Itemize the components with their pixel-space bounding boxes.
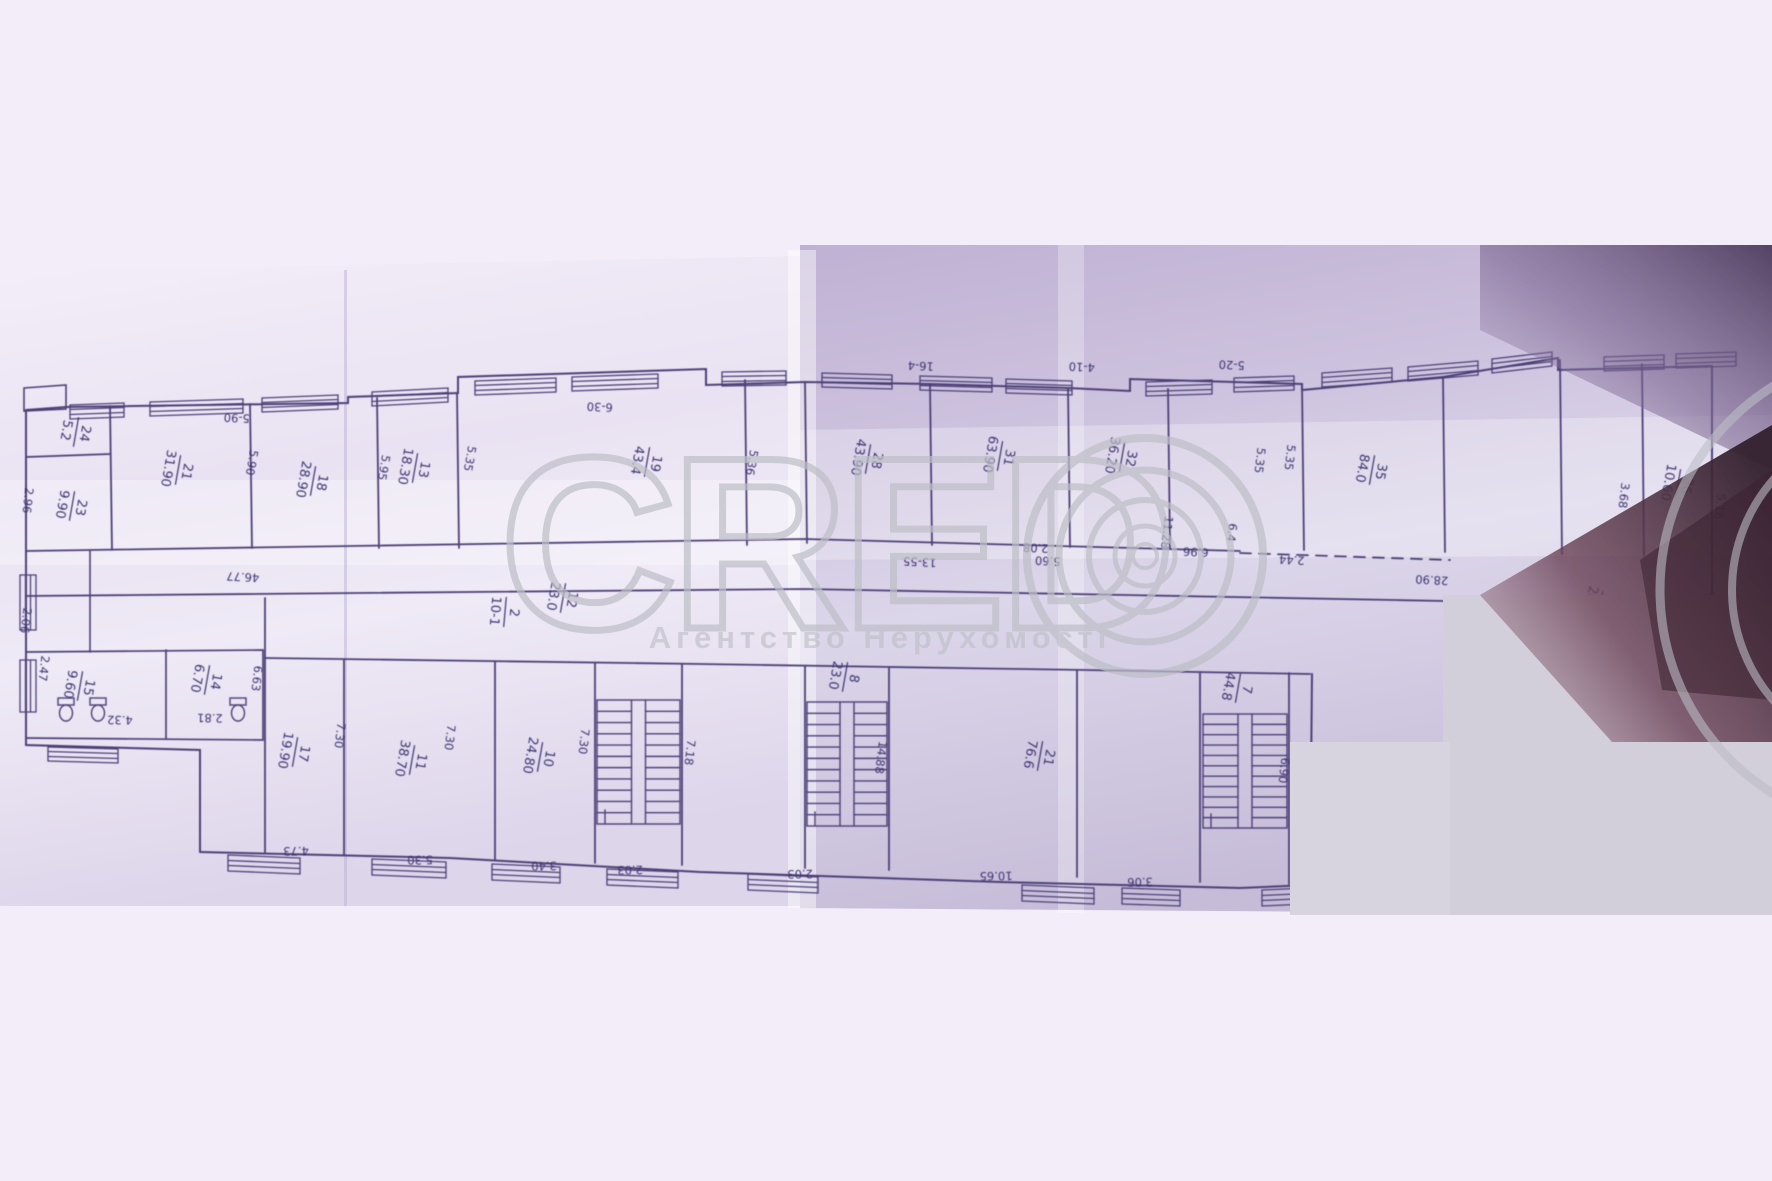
room-number: 24 xyxy=(76,424,94,443)
scanned-floorplan-page: 245.2239.902131.901828.901318.301943.428… xyxy=(0,0,1772,1181)
dim-label: 46.77 xyxy=(226,569,260,585)
dim-label: 3.40 xyxy=(531,859,557,873)
room-number: 14 xyxy=(207,672,225,691)
dim-label: 4-10 xyxy=(1068,359,1095,374)
room-number: 11 xyxy=(412,752,430,771)
room-number: 15 xyxy=(80,678,98,697)
room-number: 10 xyxy=(540,749,558,768)
dim-label: 2.81 xyxy=(197,711,223,725)
room-number: 21 xyxy=(178,462,196,481)
room-number: 18 xyxy=(313,473,331,492)
dim-label: 3.06 xyxy=(1127,875,1153,889)
watermark-subtitle: Агентство Нерухомості xyxy=(649,620,1112,655)
dim-label: 4.73 xyxy=(283,844,309,858)
dim-label: 5.30 xyxy=(407,853,433,867)
dim-label: 2.03 xyxy=(787,867,813,881)
dim-label: 5-90 xyxy=(223,410,250,425)
room-number: 35 xyxy=(1372,462,1390,481)
dim-label: 6.96 xyxy=(1183,544,1209,559)
dim-label: 2.03 xyxy=(617,863,643,877)
dim-label: 28.90 xyxy=(1415,572,1449,588)
room-number: 17 xyxy=(295,744,313,763)
blank-patch-small xyxy=(1290,742,1450,915)
room-number: 23 xyxy=(72,498,90,517)
dim-label: 2.44 xyxy=(1279,552,1305,567)
dim-label: 4.32 xyxy=(107,713,133,727)
room-number: 13 xyxy=(415,460,433,479)
dim-label: 10.65 xyxy=(979,869,1012,884)
dim-label: 16-4 xyxy=(907,358,934,373)
dim-label: 5-20 xyxy=(1218,357,1245,372)
room-number: 21 xyxy=(1040,748,1058,767)
